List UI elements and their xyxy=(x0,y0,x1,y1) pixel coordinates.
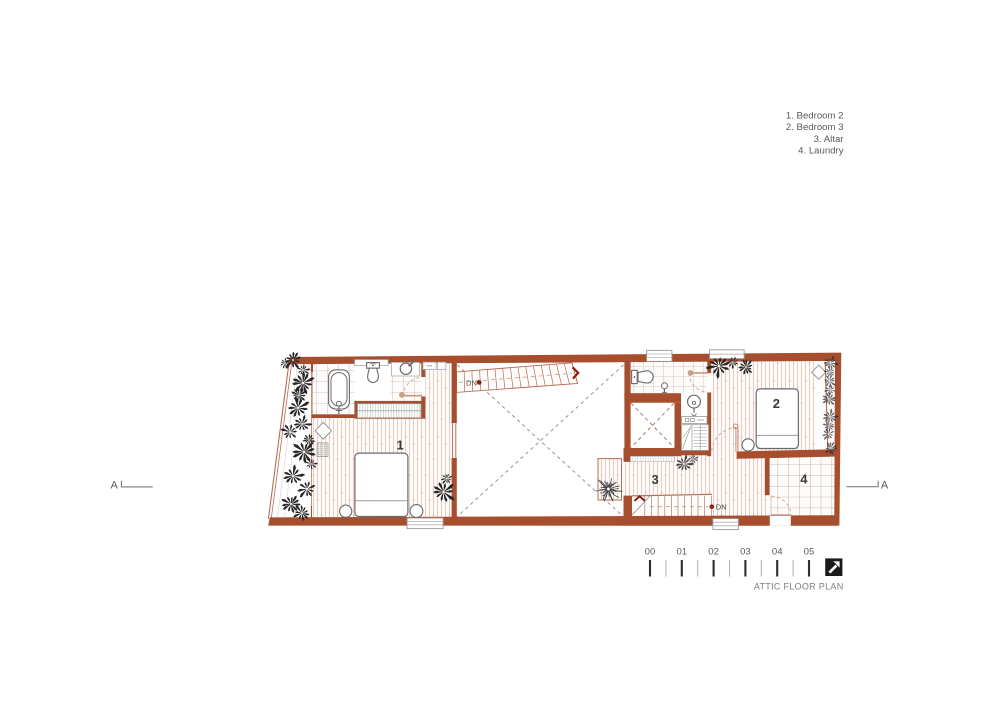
svg-text:3: 3 xyxy=(652,472,659,487)
svg-text:ATTIC FLOOR PLAN: ATTIC FLOOR PLAN xyxy=(754,581,844,591)
svg-text:3. Altar: 3. Altar xyxy=(814,134,845,145)
svg-text:A: A xyxy=(881,479,889,491)
svg-text:A: A xyxy=(111,480,119,492)
svg-text:4: 4 xyxy=(800,472,808,487)
svg-text:DN: DN xyxy=(466,378,477,387)
svg-text:01: 01 xyxy=(676,547,687,558)
svg-text:00: 00 xyxy=(645,547,656,558)
svg-text:05: 05 xyxy=(804,547,815,558)
svg-text:DN: DN xyxy=(716,503,727,512)
svg-text:2. Bedroom 3: 2. Bedroom 3 xyxy=(786,122,844,133)
svg-text:2: 2 xyxy=(773,396,780,411)
svg-text:4. Laundry: 4. Laundry xyxy=(798,145,844,156)
svg-text:04: 04 xyxy=(772,547,783,558)
svg-text:03: 03 xyxy=(740,547,751,558)
svg-text:02: 02 xyxy=(708,547,719,558)
svg-text:1. Bedroom 2: 1. Bedroom 2 xyxy=(786,111,844,122)
svg-text:1: 1 xyxy=(397,437,404,452)
